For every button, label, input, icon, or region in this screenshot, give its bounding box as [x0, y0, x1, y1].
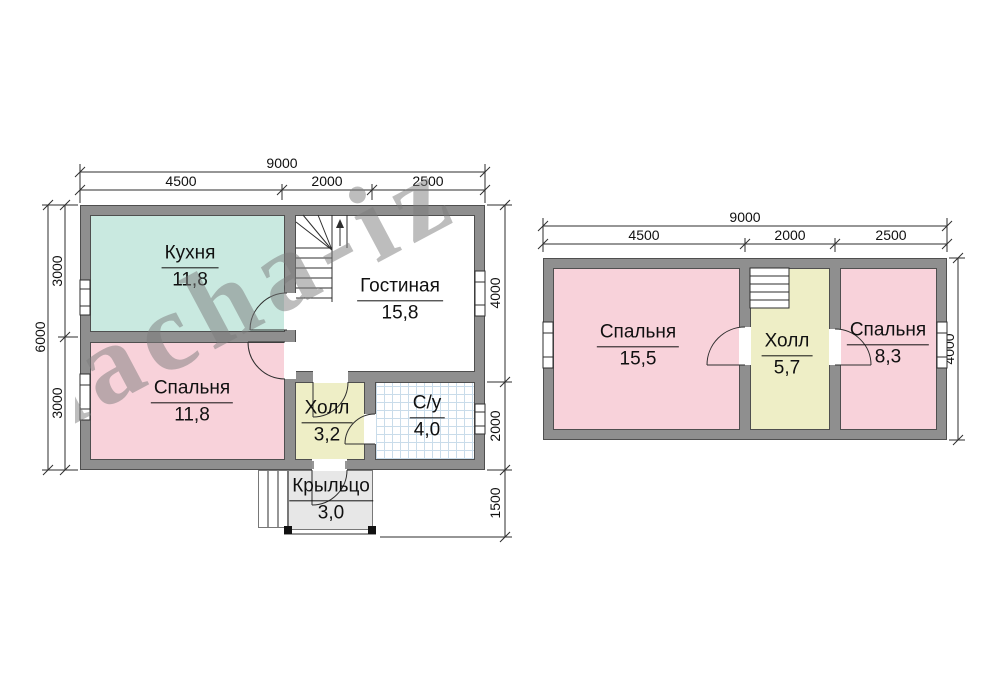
label-porch: Крыльцо 3,0: [289, 474, 373, 525]
door-gap-kitchen: [284, 293, 296, 330]
label-bedroom2-left: Спальня 15,5: [597, 320, 679, 371]
label-living: Гостиная 15,8: [357, 274, 443, 325]
label-bedroom1: Спальня 11,8: [151, 376, 233, 427]
door-gap-bedroom2-left: [739, 327, 751, 365]
label-kitchen: Кухня 11,8: [162, 241, 219, 292]
bedroom2r-area: 8,3: [847, 345, 929, 370]
living-area: 15,8: [357, 301, 443, 326]
dimension-lines-floor1: [42, 164, 512, 537]
porch-post-right: [368, 526, 376, 534]
living-name: Гостиная: [357, 274, 443, 301]
bathroom-name: С/у: [410, 391, 445, 418]
door-gap-bedroom2-right: [829, 329, 841, 365]
label-hall2: Холл 5,7: [762, 329, 813, 380]
door-gap-bedroom1: [284, 342, 296, 379]
porch-post-left: [284, 526, 292, 534]
porch-name: Крыльцо: [289, 474, 373, 501]
floor-plan-drawing: Кухня 11,8 Гостиная 15,8 Спальня 11,8 Хо…: [0, 0, 1000, 700]
bedroom1-name: Спальня: [151, 376, 233, 403]
label-bathroom: С/у 4,0: [410, 391, 445, 442]
door-gap-porch: [312, 459, 347, 471]
hall2-area: 5,7: [762, 356, 813, 381]
bedroom1-area: 11,8: [151, 403, 233, 428]
stairs-floor2: [750, 268, 789, 308]
hall1-name: Холл: [302, 396, 353, 423]
kitchen-name: Кухня: [162, 241, 219, 268]
bedroom2l-name: Спальня: [597, 320, 679, 347]
label-hall1: Холл 3,2: [302, 396, 353, 447]
bedroom2l-area: 15,5: [597, 347, 679, 372]
door-gap-bathroom: [364, 414, 376, 444]
bedroom2r-name: Спальня: [847, 318, 929, 345]
porch-area: 3,0: [289, 501, 373, 526]
hall1-area: 3,2: [302, 423, 353, 448]
kitchen-area: 11,8: [162, 268, 219, 293]
label-bedroom2-right: Спальня 8,3: [847, 318, 929, 369]
bathroom-area: 4,0: [410, 418, 445, 443]
dimension-ticks: [43, 167, 963, 542]
door-gap-hall-top: [313, 371, 348, 383]
stairs-floor1: [296, 215, 347, 302]
hall2-name: Холл: [762, 329, 813, 356]
